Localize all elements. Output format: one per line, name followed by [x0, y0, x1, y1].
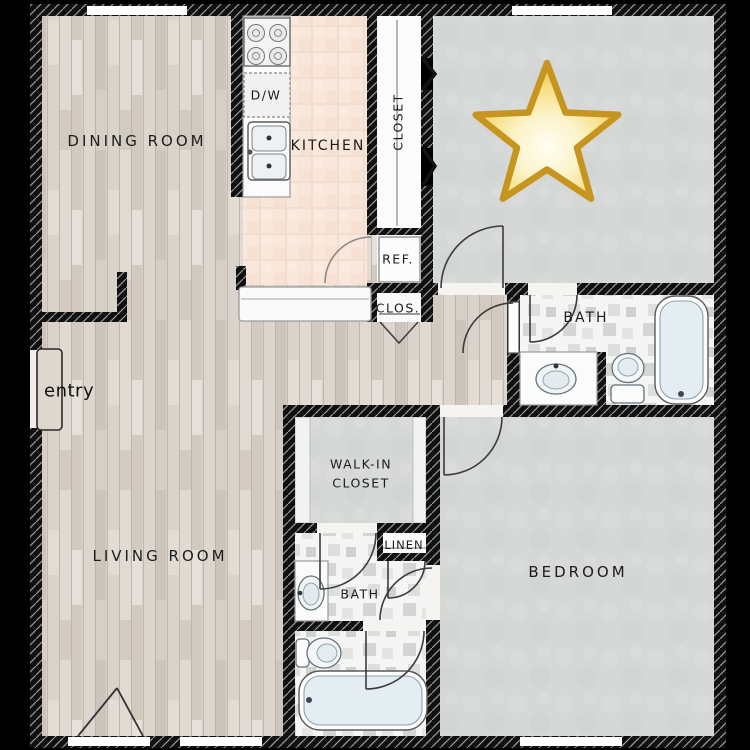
door-sill	[440, 405, 503, 417]
lower-bath-label: BATH	[340, 587, 379, 602]
sink-drain	[267, 164, 272, 169]
faucet-icon	[298, 591, 303, 596]
bedroom-label: BEDROOM	[528, 563, 627, 581]
door-leaf	[508, 302, 519, 353]
window	[87, 6, 187, 15]
toilet-tank	[611, 385, 644, 403]
upper-bath-label: BATH	[563, 310, 608, 326]
refrigerator-label: REF.	[382, 252, 414, 267]
floor-plan: DINING ROOM KITCHEN D/W CLOSET REF. CLOS…	[0, 0, 750, 750]
tub-drain	[678, 391, 684, 397]
closet-shelf-left	[295, 417, 310, 523]
walk-in-closet-label-1: WALK-IN	[330, 457, 392, 472]
door-sill	[317, 523, 377, 533]
window	[512, 6, 612, 15]
stove-burner	[270, 48, 287, 65]
bathtub-basin	[304, 676, 422, 725]
window	[68, 737, 150, 746]
dining-room-floor	[42, 16, 231, 322]
vanity-sink-basin	[543, 371, 569, 389]
dining-room-label: DINING ROOM	[67, 132, 206, 150]
stove-burner	[270, 25, 287, 42]
walk-in-closet-label-2: CLOSET	[332, 476, 390, 491]
hall-closet2-label: CLOS.	[376, 301, 421, 316]
door-sill	[438, 283, 505, 295]
window	[180, 737, 262, 746]
kitchen-label: KITCHEN	[291, 138, 366, 154]
door-sill	[426, 565, 440, 620]
bar-counter	[239, 287, 371, 321]
door-sill	[363, 621, 426, 631]
bathtub-basin	[660, 301, 703, 399]
dishwasher-label: D/W	[251, 88, 282, 103]
hall-closet-label: CLOSET	[391, 93, 406, 151]
linen-label: LINEN	[384, 538, 423, 552]
door-sill	[528, 283, 577, 295]
stove-burner	[248, 25, 265, 42]
entry-label: entry	[44, 381, 94, 402]
sink-drain	[267, 136, 272, 141]
toilet-bowl	[618, 358, 638, 376]
vanity-sink-basin	[303, 583, 319, 605]
faucet-icon	[554, 364, 559, 369]
stove-burner	[248, 48, 265, 65]
faucet-icon	[247, 149, 252, 154]
window	[520, 737, 622, 746]
closet-shelf-right	[413, 417, 426, 523]
floor-plan-canvas: DINING ROOM KITCHEN D/W CLOSET REF. CLOS…	[0, 0, 750, 750]
toilet-bowl	[317, 644, 337, 662]
tub-drain	[306, 697, 312, 703]
living-room-label: LIVING ROOM	[92, 547, 227, 565]
